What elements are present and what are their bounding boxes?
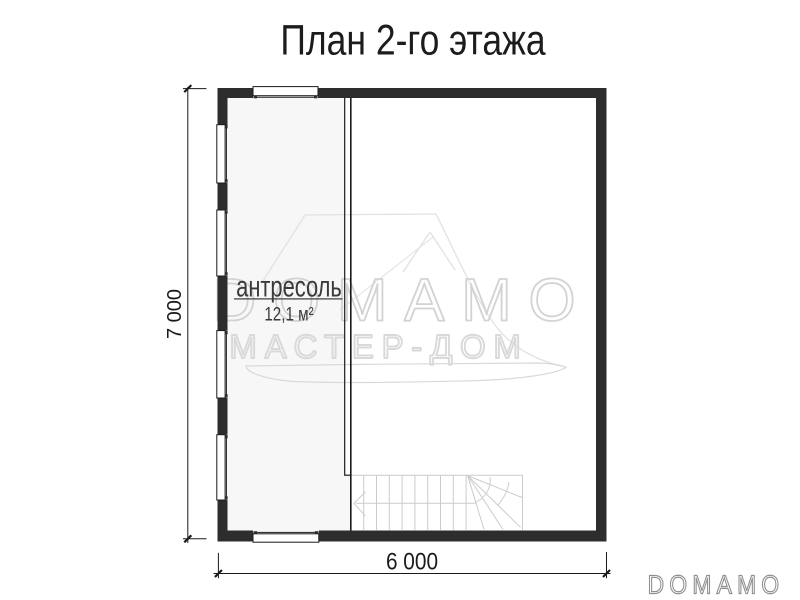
svg-text:антресоль: антресоль [236,269,342,303]
svg-text:МАСТЕР-ДОМ: МАСТЕР-ДОМ [229,328,528,365]
svg-text:7 000: 7 000 [164,289,186,339]
svg-text:DOMAMO: DOMAMO [648,571,785,600]
svg-text:План 2-го этажа: План 2-го этажа [280,16,545,64]
svg-text:12,1 м²: 12,1 м² [264,303,313,325]
svg-text:6 000: 6 000 [386,547,438,575]
